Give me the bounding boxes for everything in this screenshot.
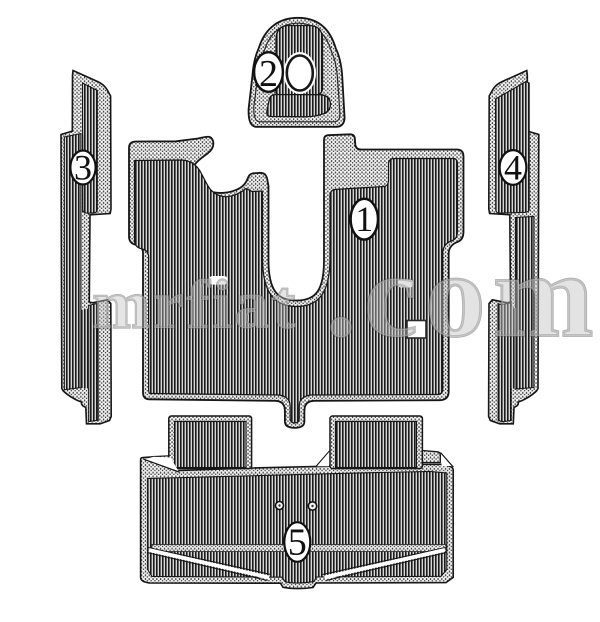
svg-text:2: 2 (259, 53, 278, 95)
svg-text:4: 4 (504, 148, 522, 188)
svg-text:3: 3 (74, 148, 92, 188)
svg-text:mrfiat: mrfiat (93, 267, 299, 343)
svg-text:.com: .com (326, 229, 600, 362)
svg-text:5: 5 (288, 522, 307, 564)
